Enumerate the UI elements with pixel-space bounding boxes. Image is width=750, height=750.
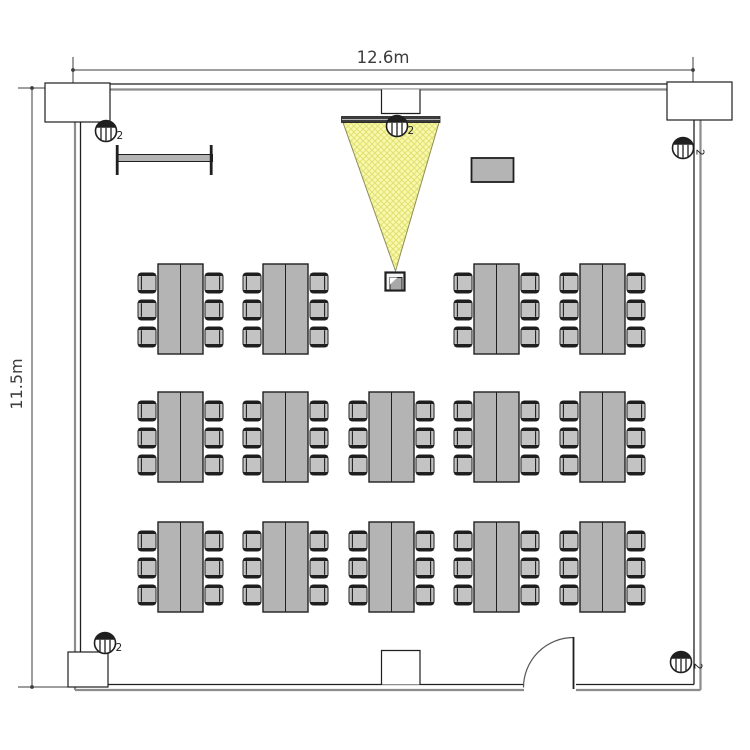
floor-plan-drawing: 12.6m 11.5m [0, 0, 750, 750]
table-group [243, 264, 328, 354]
speaker-cap [671, 652, 691, 659]
table-group [138, 522, 223, 612]
whiteboard-end-cap-left [116, 145, 119, 175]
door [524, 637, 574, 689]
pillar-bottom-left [68, 652, 108, 687]
projection-cone [343, 123, 439, 272]
ceiling-speaker-bottom-left: 2 [95, 633, 123, 655]
door-swing-arc [524, 638, 574, 688]
speaker-cap [673, 138, 693, 145]
room-height-label: 11.5m [7, 358, 26, 409]
top-dimension-tick-left [71, 68, 75, 72]
floor-plan-canvas: 12.6m 11.5m [0, 0, 750, 750]
speaker-count-label: 2 [694, 149, 706, 156]
left-dimension-tick-top [30, 86, 34, 90]
cabinet [472, 158, 514, 182]
projector [386, 273, 405, 291]
top-dimension-tick-right [691, 68, 695, 72]
speaker-count-label: 2 [116, 642, 123, 654]
whiteboard-rail [117, 155, 213, 162]
ceiling-speaker-bottom-right: 2 [671, 652, 704, 673]
speaker-cap [95, 633, 115, 640]
table-group [560, 522, 645, 612]
left-dimension-tick-bottom [30, 685, 34, 689]
table-group [138, 264, 223, 354]
pillar-top-right [667, 82, 732, 120]
speaker-count-label: 2 [117, 130, 124, 142]
table-group [349, 522, 434, 612]
niche-top-center [382, 90, 421, 114]
niche-bottom-center [382, 651, 421, 685]
speaker-count-label: 2 [408, 125, 415, 137]
table-group [454, 392, 539, 482]
table-group [349, 392, 434, 482]
whiteboard [116, 145, 213, 175]
table-group [560, 392, 645, 482]
whiteboard-end-cap-right [210, 145, 213, 175]
table-group [243, 522, 328, 612]
table-group [560, 264, 645, 354]
pillar-top-left [45, 83, 110, 122]
tables-layer [138, 264, 645, 612]
table-group [243, 392, 328, 482]
ceiling-speaker-top-left: 2 [96, 120, 124, 142]
table-group [454, 522, 539, 612]
room-width-label: 12.6m [357, 48, 410, 67]
table-group [138, 392, 223, 482]
table-group [454, 264, 539, 354]
speaker-count-label: 2 [692, 663, 704, 670]
